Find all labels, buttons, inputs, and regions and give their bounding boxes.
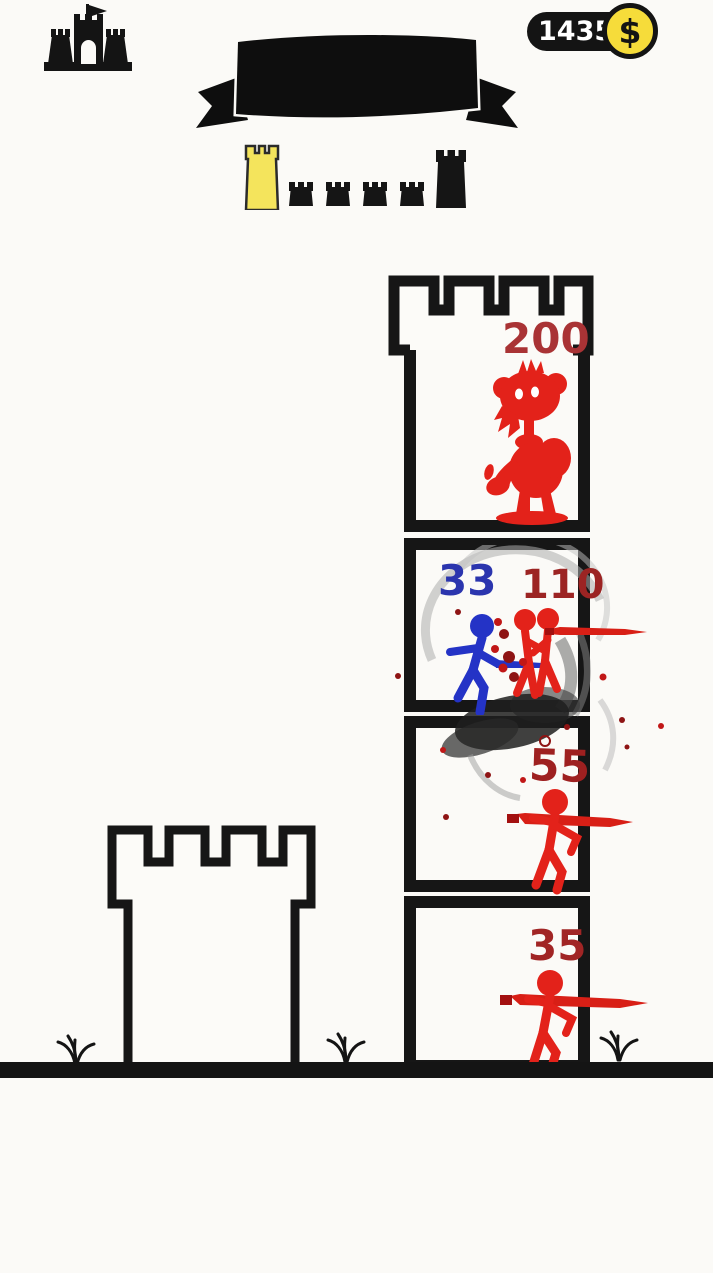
ally-hp-label: 33 [438,560,496,602]
grass-tuft-icon [52,1032,100,1068]
boss-hp-label: 200 [502,318,590,360]
boss-eye [531,387,539,398]
boss-monster-figure [474,358,594,526]
enemy-hp-label: 110 [521,565,605,605]
banner-band [236,35,478,117]
sword-grip [500,995,512,1005]
final-level-tower-icon [433,148,469,208]
current-level-tower-icon [242,144,282,210]
grass-tuft-icon [595,1028,643,1064]
grass-tuft-icon [322,1030,370,1066]
game-screen: 14350 $ [0,0,713,1273]
upcoming-level-tower-icon [361,180,389,206]
boss-eye [515,389,523,400]
enemy-hp-label: 55 [528,744,591,790]
upcoming-level-tower-icon [324,180,352,206]
upcoming-level-tower-icon [398,180,426,206]
castle-flag-icon[interactable] [40,2,136,74]
enemy-hp-label: 35 [528,925,586,967]
coin-icon[interactable]: $ [602,3,658,59]
castle-door [81,40,96,64]
player-tower[interactable] [100,818,325,1078]
dollar-symbol: $ [619,15,642,48]
level-progress [240,142,475,212]
upcoming-level-tower-icon [287,180,315,206]
level-banner [192,26,522,138]
